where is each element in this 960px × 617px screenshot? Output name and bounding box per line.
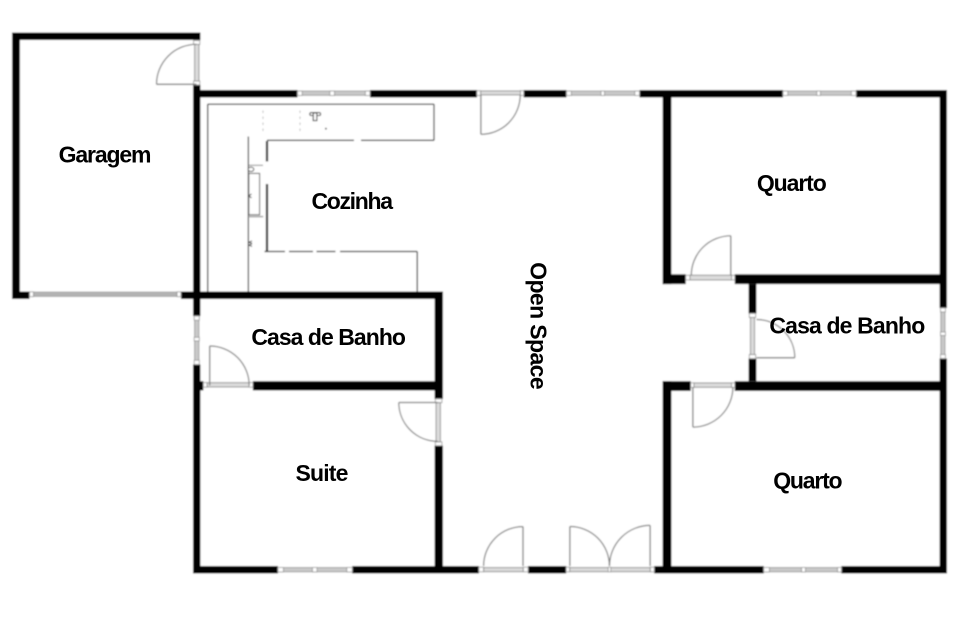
svg-text:Casa de Banho: Casa de Banho [769, 313, 925, 339]
svg-text:Open Space: Open Space [525, 262, 551, 389]
svg-text:Garagem: Garagem [59, 142, 151, 168]
svg-text:Suite: Suite [295, 460, 347, 486]
svg-text:Casa de Banho: Casa de Banho [251, 324, 406, 350]
svg-text:Quarto: Quarto [757, 170, 827, 196]
svg-text:Cozinha: Cozinha [311, 188, 393, 214]
svg-text:Quarto: Quarto [773, 468, 842, 494]
